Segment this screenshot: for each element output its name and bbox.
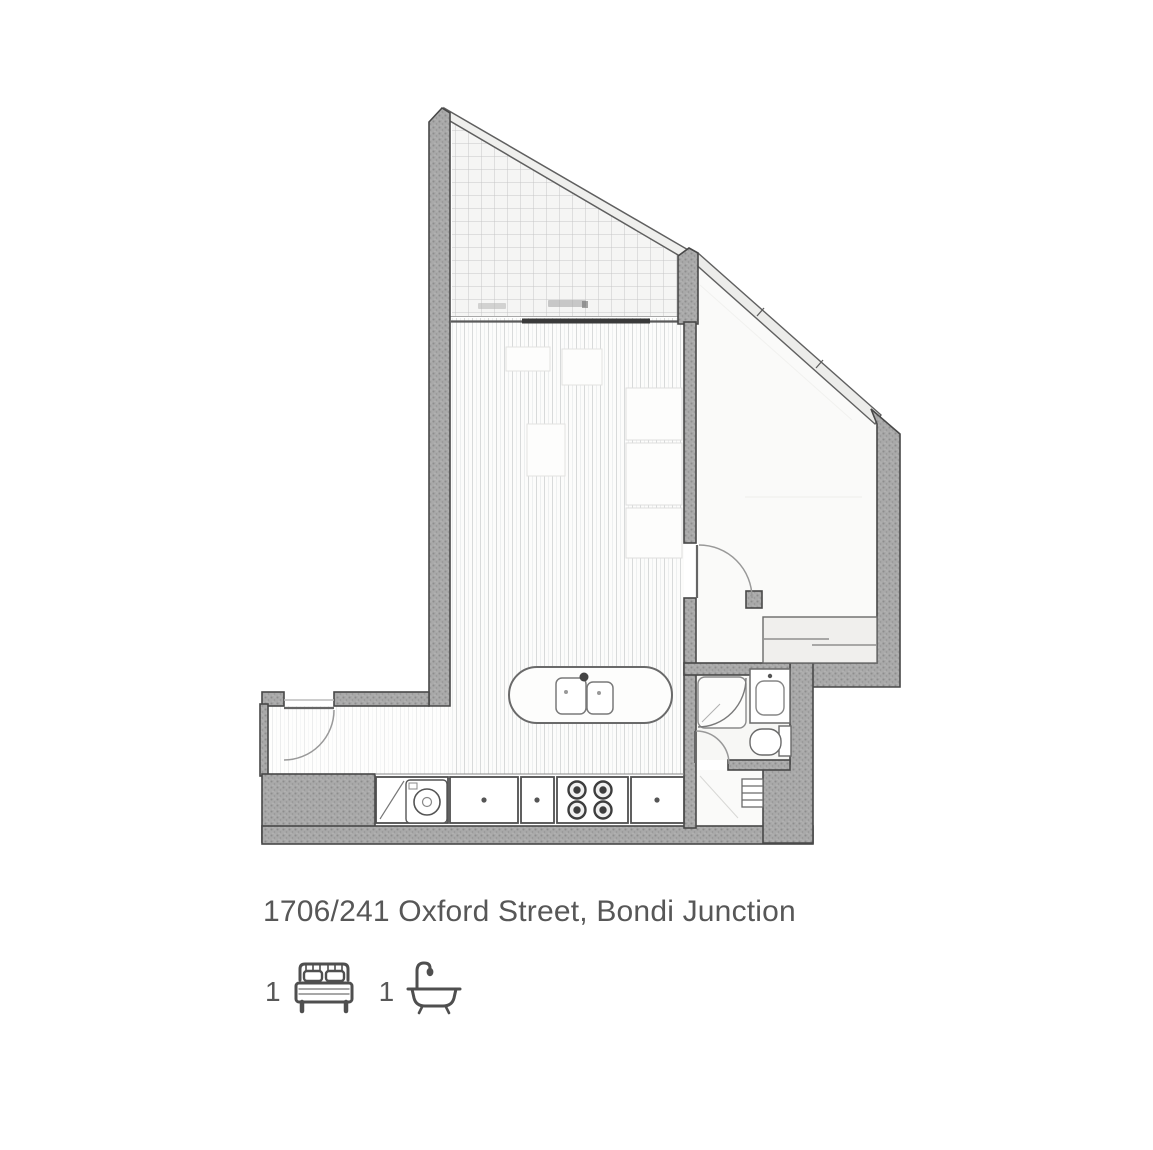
sink-bowl [587, 682, 613, 714]
pillar [678, 248, 698, 324]
balcony-area [452, 118, 684, 316]
dimension-mark [582, 301, 588, 308]
bath-count: 1 [379, 978, 395, 1006]
washing-machine [406, 780, 447, 823]
furniture-ghost [506, 347, 550, 371]
toilet-bowl [750, 729, 781, 755]
bed-count: 1 [265, 978, 281, 1006]
entry-area [268, 706, 450, 774]
tap-icon [768, 674, 772, 678]
left-wall [429, 108, 450, 706]
dimension-mark [548, 300, 586, 307]
furniture-ghost [562, 349, 602, 385]
tall-cabinets [626, 388, 682, 558]
door-pier [746, 591, 762, 608]
faucet-icon [580, 673, 589, 682]
floorplan-image [255, 100, 905, 850]
entry-wall-stub [334, 692, 429, 706]
cabinet-handle [534, 797, 539, 802]
bedroom-area [698, 260, 877, 663]
wardrobe [763, 617, 877, 663]
bath-icon [404, 956, 464, 1018]
cabinet-handle [481, 797, 486, 802]
cabinet-handle [654, 797, 659, 802]
listing-stats: 1 1 [265, 950, 464, 1020]
bed-icon [291, 956, 357, 1018]
bathroom-bottom-wall [728, 760, 790, 770]
listing-address: 1706/241 Oxford Street, Bondi Junction [263, 895, 796, 929]
sink-bowl [556, 678, 586, 714]
furniture-ghost [527, 424, 565, 476]
kitchen-island [509, 667, 672, 723]
bottom-wall [262, 826, 813, 844]
entry-side-wall [260, 704, 268, 776]
living-bedroom-wall [684, 322, 696, 543]
cooktop [557, 777, 628, 823]
hall-wall [684, 598, 696, 828]
listing-card: 1706/241 Oxford Street, Bondi Junction 1 [0, 0, 1153, 1150]
kitchen-bench [375, 774, 684, 823]
dimension-mark [478, 303, 506, 309]
